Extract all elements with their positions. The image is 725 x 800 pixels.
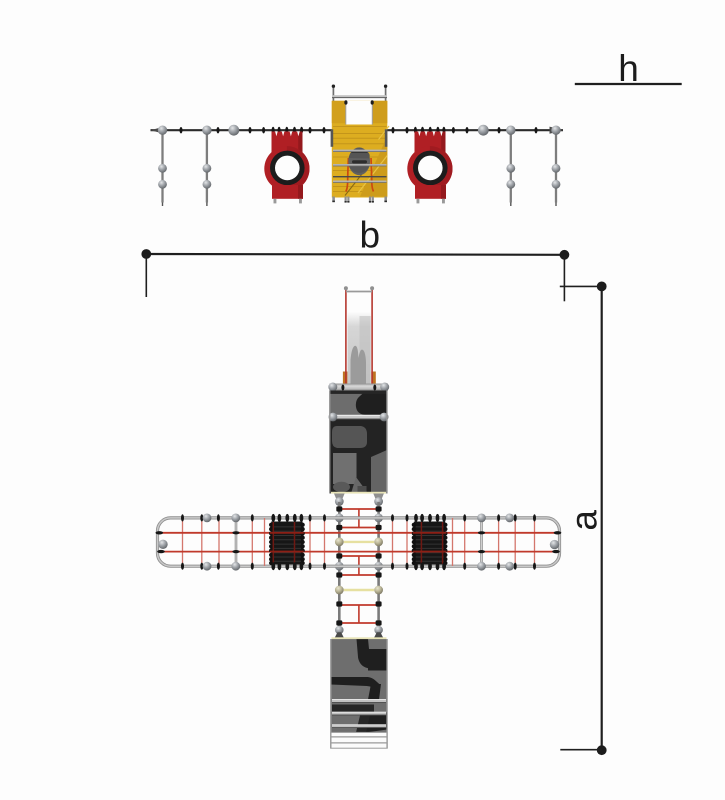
svg-text:b: b [360,215,381,256]
svg-text:h: h [618,48,639,89]
svg-text:a: a [564,510,605,531]
